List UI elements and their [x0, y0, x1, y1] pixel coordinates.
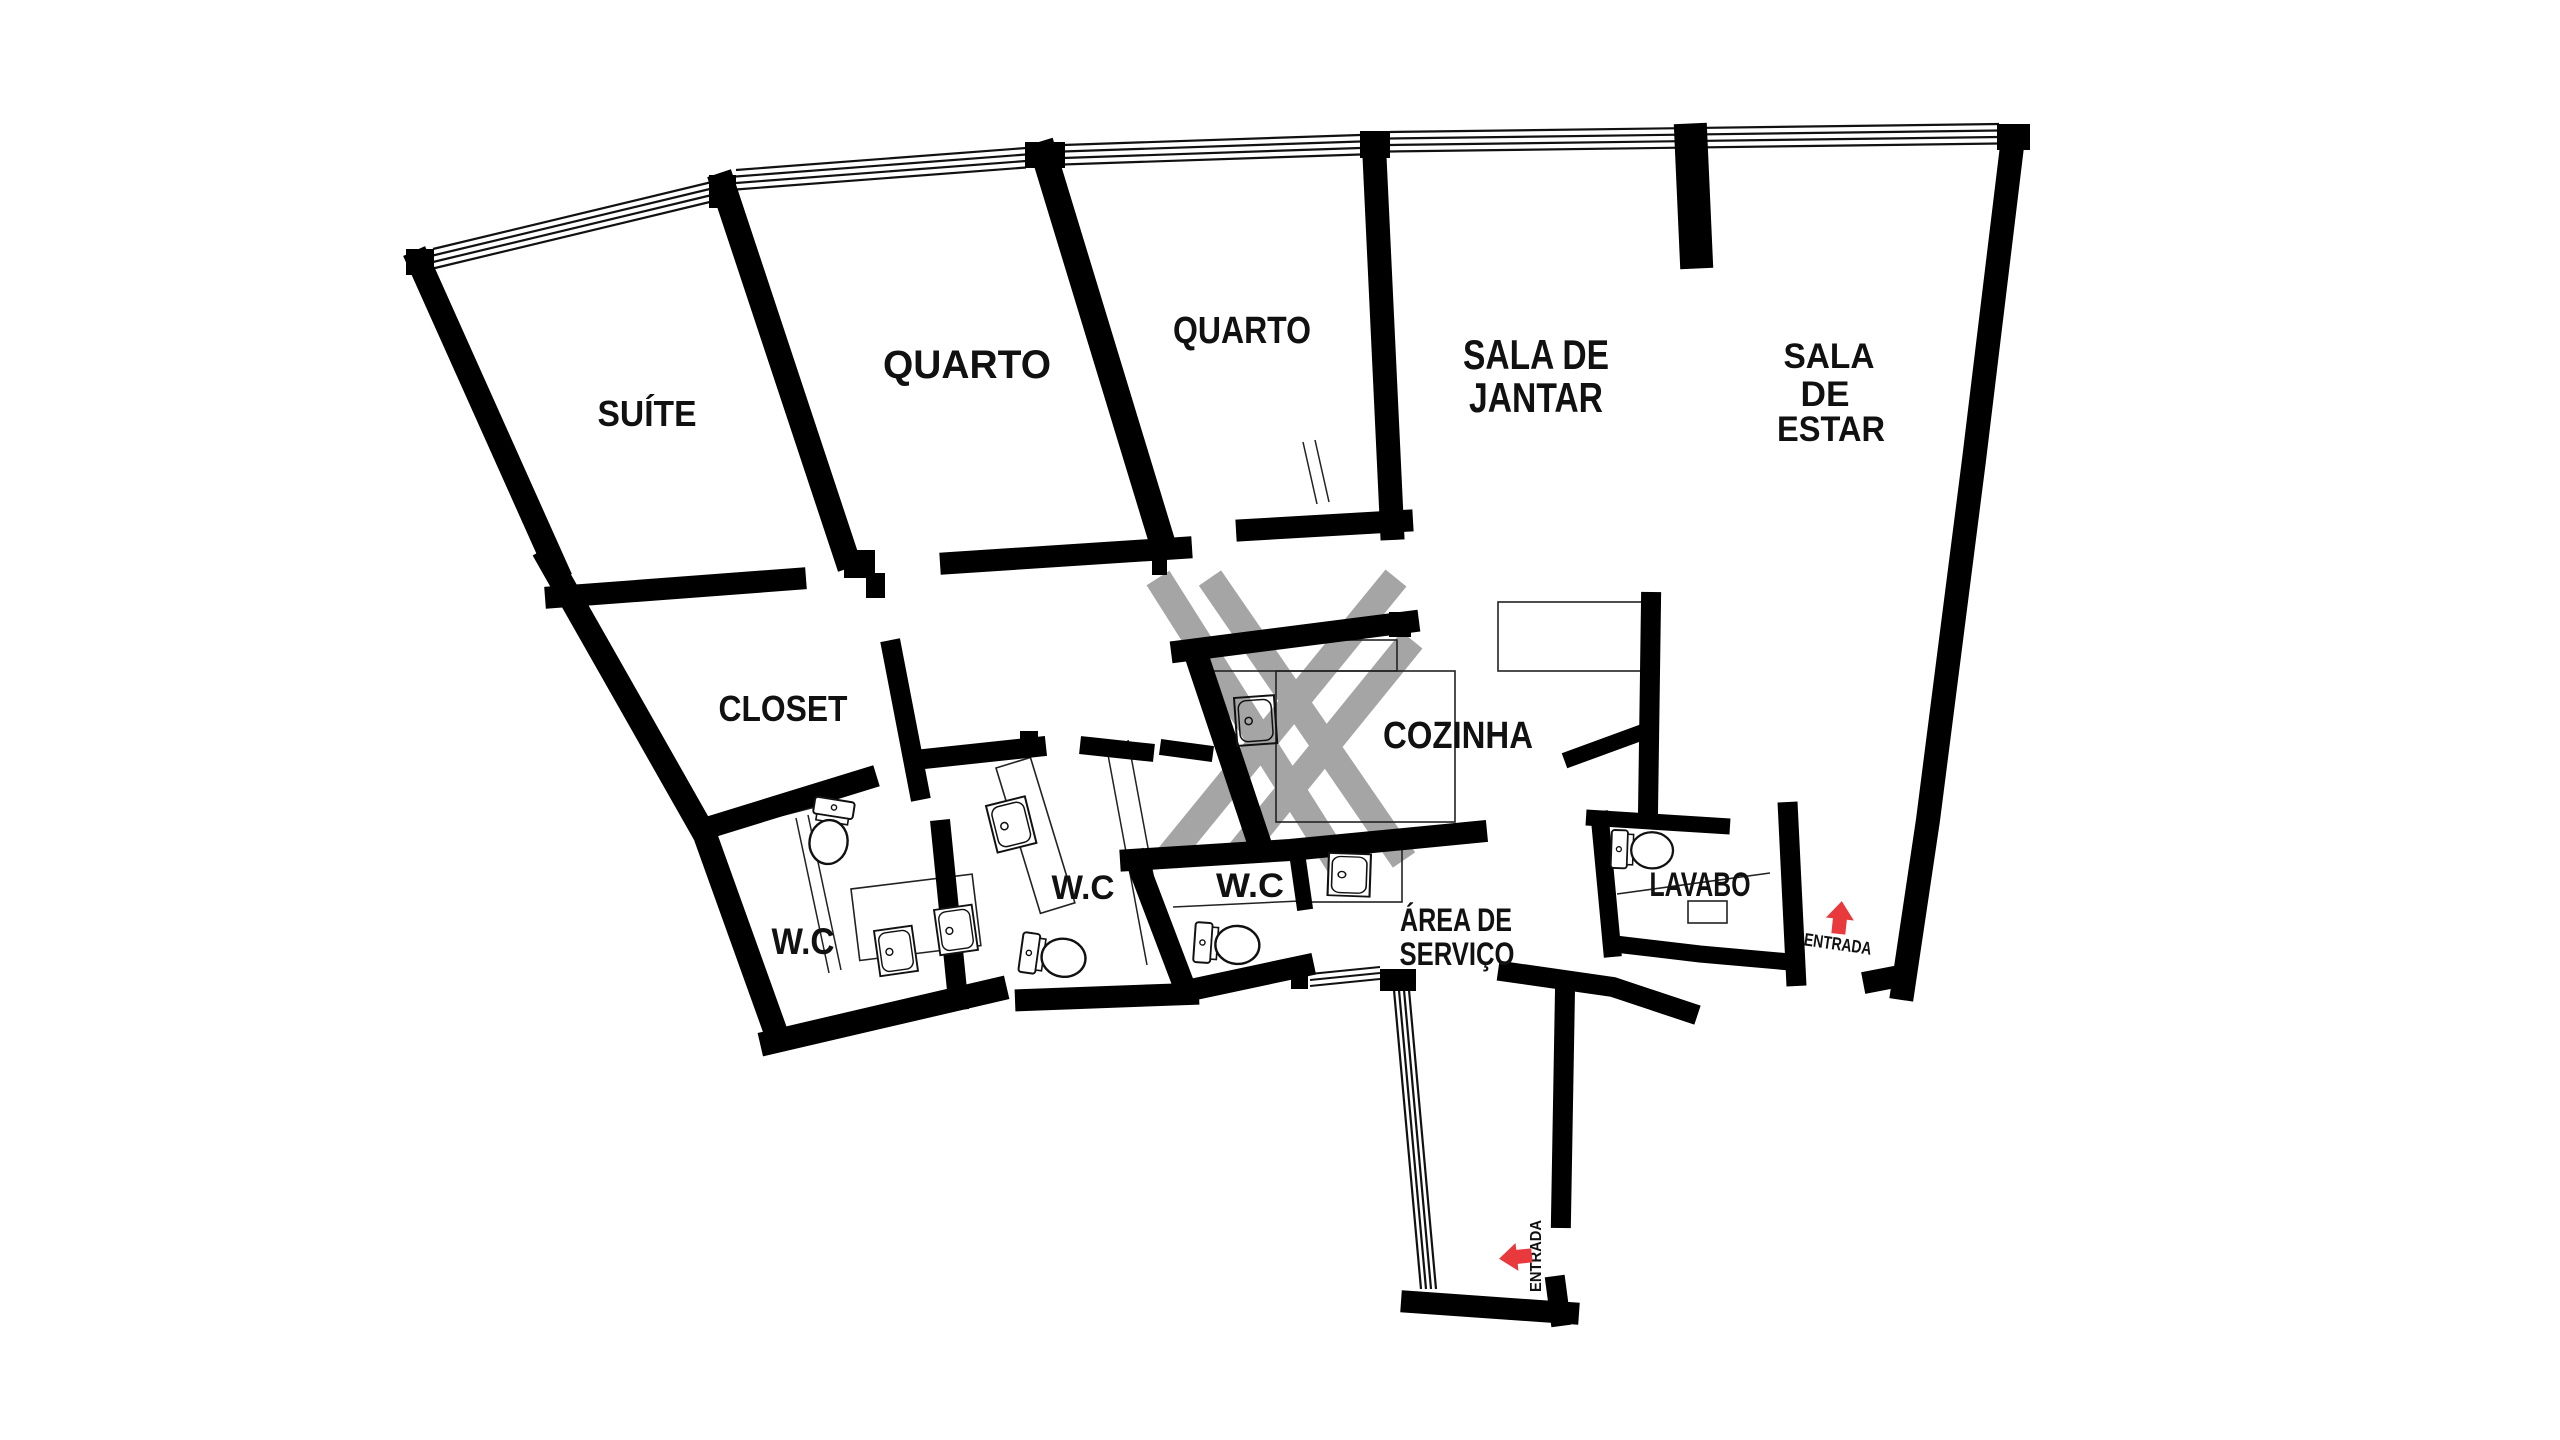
svg-text:SERVIÇO: SERVIÇO — [1400, 936, 1515, 972]
svg-text:QUARTO: QUARTO — [883, 343, 1051, 387]
svg-text:SALA: SALA — [1784, 337, 1875, 376]
svg-text:JANTAR: JANTAR — [1469, 374, 1603, 421]
svg-text:W.C: W.C — [1052, 869, 1115, 907]
svg-text:ESTAR: ESTAR — [1777, 410, 1885, 449]
svg-text:COZINHA: COZINHA — [1383, 715, 1533, 757]
svg-text:W.C: W.C — [1216, 867, 1284, 905]
svg-text:W.C: W.C — [772, 921, 835, 962]
svg-text:CLOSET: CLOSET — [719, 688, 848, 729]
svg-text:DE: DE — [1801, 375, 1850, 414]
svg-text:SUÍTE: SUÍTE — [598, 393, 697, 434]
svg-text:QUARTO: QUARTO — [1173, 310, 1311, 352]
svg-text:SALA DE: SALA DE — [1463, 331, 1609, 378]
svg-text:LAVABO: LAVABO — [1650, 866, 1751, 904]
svg-text:ÁREA DE: ÁREA DE — [1400, 902, 1512, 938]
